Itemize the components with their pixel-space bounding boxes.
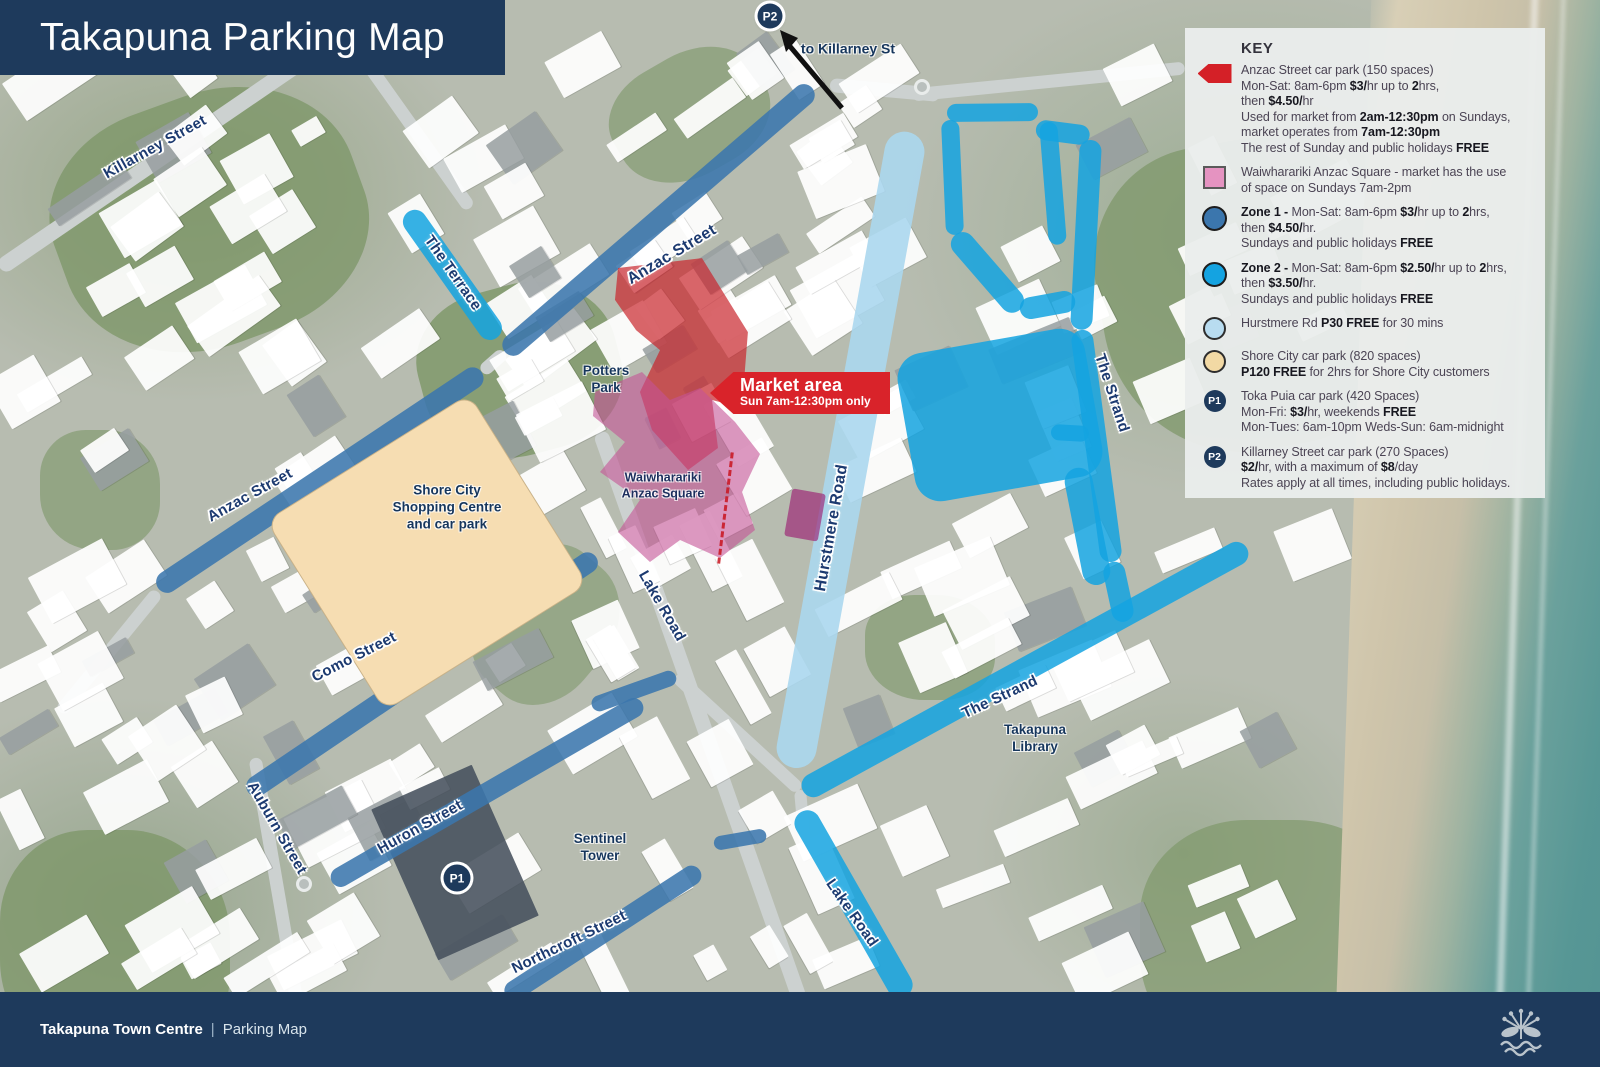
circle-hurstmere-icon bbox=[1203, 317, 1226, 340]
circle-zone1-icon bbox=[1202, 206, 1227, 231]
zone2-road bbox=[946, 227, 1029, 318]
footer-bar: Takapuna Town Centre | Parking Map bbox=[0, 992, 1600, 1067]
key-icon-cell: P2 bbox=[1197, 445, 1232, 492]
p2-marker: P2 bbox=[758, 4, 783, 29]
key-icon-cell bbox=[1197, 316, 1232, 340]
key-entry-zone-2: Zone 2 - Mon-Sat: 8am-6pm $2.50/hr up to… bbox=[1197, 261, 1533, 308]
zone2-road bbox=[1018, 289, 1077, 321]
badge-p2-icon: P2 bbox=[1204, 446, 1226, 468]
footer-separator: | bbox=[211, 1021, 215, 1038]
key-icon-cell bbox=[1197, 349, 1232, 380]
key-entry-toka-puia-car-park: P1Toka Puia car park (420 Spaces)Mon-Fri… bbox=[1197, 389, 1533, 436]
square-pink-icon bbox=[1203, 166, 1226, 189]
key-entries: Anzac Street car park (150 spaces)Mon-Sa… bbox=[1197, 63, 1533, 491]
key-entry-text: Killarney Street car park (270 Spaces)$2… bbox=[1241, 445, 1533, 492]
zone2-road bbox=[947, 103, 1038, 122]
place-label-takapuna-library: TakapunaLibrary bbox=[1004, 722, 1066, 756]
key-icon-cell: P1 bbox=[1197, 389, 1232, 436]
market-area-callout-title: Market area bbox=[740, 375, 884, 395]
key-entry-text: Waiwharariki Anzac Square - market has t… bbox=[1241, 165, 1533, 196]
key-entry-hurstmere-rd-p30: Hurstmere Rd P30 FREE for 30 mins bbox=[1197, 316, 1533, 340]
page-title: Takapuna Parking Map bbox=[40, 16, 445, 60]
place-label-potters-park: PottersPark bbox=[583, 363, 630, 397]
key-entry-shore-city-car-park: Shore City car park (820 spaces)P120 FRE… bbox=[1197, 349, 1533, 380]
key-entry-text: Hurstmere Rd P30 FREE for 30 mins bbox=[1241, 316, 1533, 340]
place-label-sentinel-tower: SentinelTower bbox=[574, 831, 627, 865]
key-entry-anzac-street-car-park: Anzac Street car park (150 spaces)Mon-Sa… bbox=[1197, 63, 1533, 156]
arrow-red-icon bbox=[1198, 64, 1232, 83]
killarney-direction-arrow bbox=[762, 22, 872, 117]
market-area-callout-subtitle: Sun 7am-12:30pm only bbox=[740, 395, 884, 408]
footer-brand: Takapuna Town Centre bbox=[40, 1021, 203, 1038]
key-entry-text: Toka Puia car park (420 Spaces)Mon-Fri: … bbox=[1241, 389, 1533, 436]
key-icon-cell bbox=[1197, 165, 1232, 196]
circle-zone2-icon bbox=[1202, 262, 1227, 287]
hurstmere-road bbox=[773, 128, 927, 771]
circle-shore-icon bbox=[1203, 350, 1226, 373]
key-title: KEY bbox=[1241, 40, 1533, 57]
key-entry-waiwharariki-anzac-square: Waiwharariki Anzac Square - market has t… bbox=[1197, 165, 1533, 196]
footer-page-name: Parking Map bbox=[223, 1021, 307, 1038]
zone2-road bbox=[797, 537, 1253, 801]
p1-marker: P1 bbox=[444, 865, 471, 892]
council-pohutukawa-logo bbox=[1497, 1003, 1545, 1057]
market-area-callout: Market area Sun 7am-12:30pm only bbox=[710, 372, 890, 414]
zone2-road bbox=[941, 120, 964, 236]
key-entry-text: Anzac Street car park (150 spaces)Mon-Sa… bbox=[1241, 63, 1533, 156]
title-banner: Takapuna Parking Map bbox=[0, 0, 505, 75]
key-panel: KEY Anzac Street car park (150 spaces)Mo… bbox=[1185, 28, 1545, 498]
key-entry-killarney-street-car-park: P2Killarney Street car park (270 Spaces)… bbox=[1197, 445, 1533, 492]
key-icon-cell bbox=[1197, 261, 1232, 308]
key-entry-text: Zone 2 - Mon-Sat: 8am-6pm $2.50/hr up to… bbox=[1241, 261, 1533, 308]
key-entry-text: Shore City car park (820 spaces)P120 FRE… bbox=[1241, 349, 1533, 380]
badge-p1-icon: P1 bbox=[1204, 390, 1226, 412]
key-entry-text: Zone 1 - Mon-Sat: 8am-6pm $3/hr up to 2h… bbox=[1241, 205, 1533, 252]
p2-marker-label: P2 bbox=[763, 9, 778, 23]
p1-marker-label: P1 bbox=[450, 871, 465, 885]
takapuna-parking-map: Killarney Street The Terrace Anzac Stree… bbox=[0, 0, 1600, 1067]
zone1-road bbox=[713, 828, 767, 851]
place-label-shore-city: Shore CityShopping Centreand car park bbox=[393, 483, 502, 534]
key-icon-cell bbox=[1197, 205, 1232, 252]
place-label-waiwharariki-anzac-square: WaiwhararikiAnzac Square bbox=[622, 470, 705, 501]
key-icon-cell bbox=[1197, 63, 1232, 156]
key-entry-zone-1: Zone 1 - Mon-Sat: 8am-6pm $3/hr up to 2h… bbox=[1197, 205, 1533, 252]
